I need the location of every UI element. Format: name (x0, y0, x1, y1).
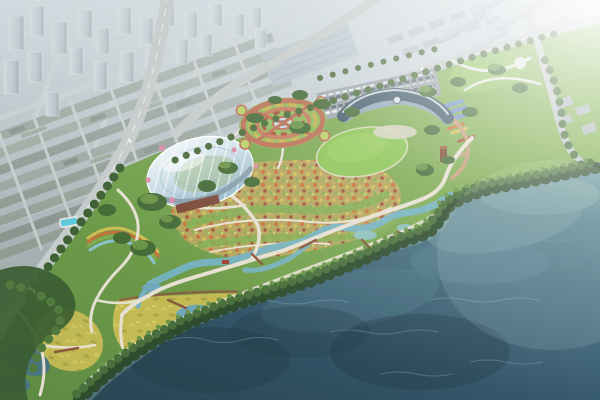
sun-glare-overlay (0, 0, 600, 400)
rendering-canvas (0, 0, 600, 400)
park-masterplan-rendering (0, 0, 600, 400)
